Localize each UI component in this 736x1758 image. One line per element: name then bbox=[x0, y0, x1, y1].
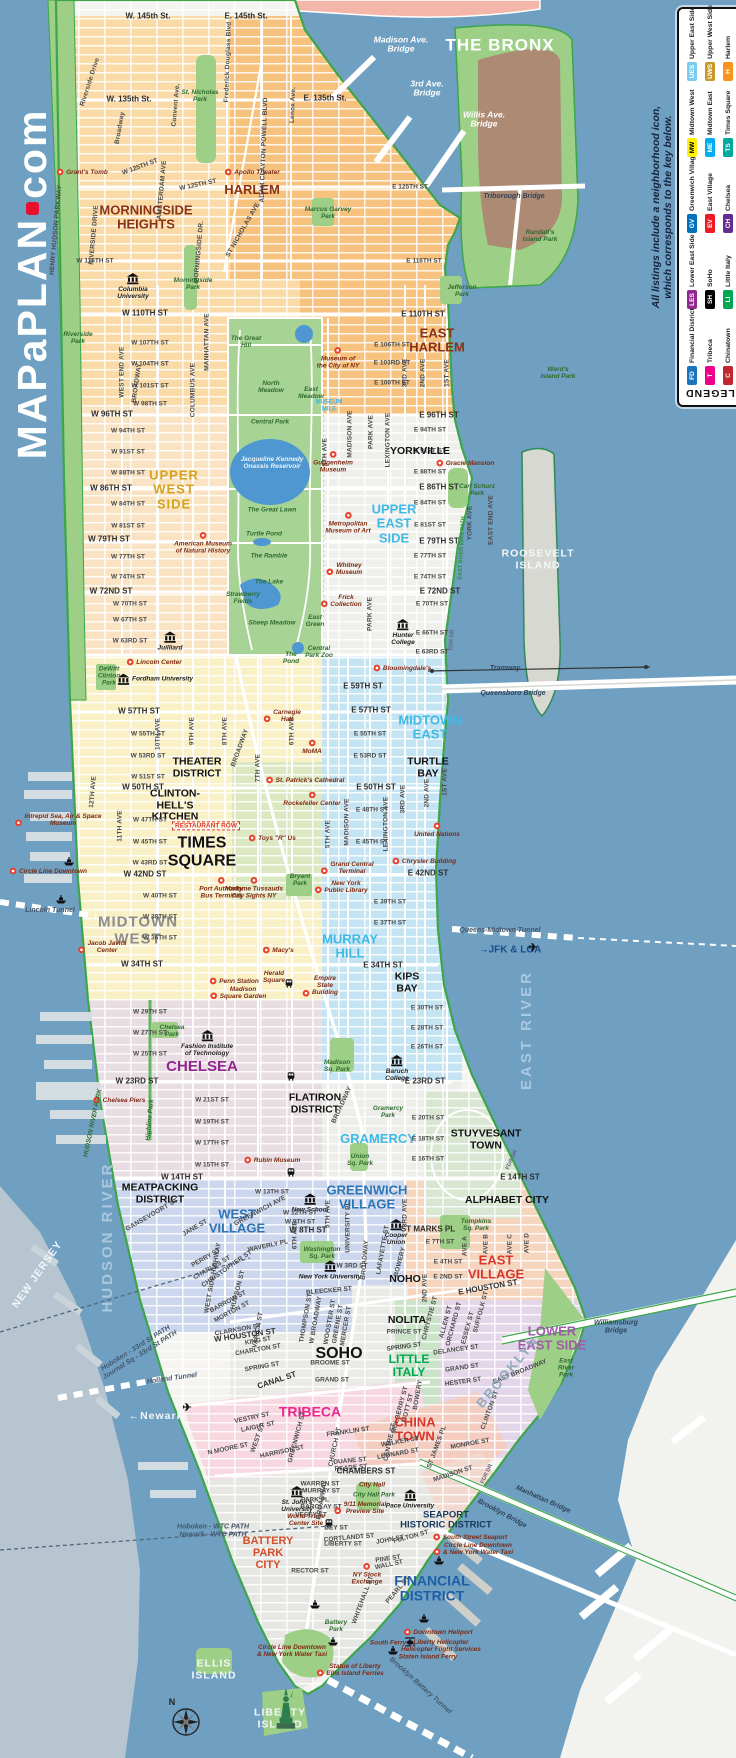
9th-ave-text: 9TH AVE bbox=[188, 717, 195, 745]
roosevelt-island-text: ROOSEVELTISLAND bbox=[502, 548, 575, 571]
convent-ave-text: Convent Ave. bbox=[171, 83, 182, 127]
st-nicholas-ave: ST NICHOLAS AVE bbox=[225, 202, 262, 259]
e-20th-st-text: E 20TH ST bbox=[412, 1114, 444, 1121]
grand-central-terminal: Grand CentralTerminal bbox=[320, 861, 373, 875]
w-135th-st-text: W. 135th St. bbox=[107, 96, 152, 105]
lincoln-center: Lincoln Center bbox=[126, 658, 182, 666]
tompkins-sq-park-text: TompkinsSq. Park bbox=[461, 1218, 491, 1232]
w-14th-st: W 14TH ST bbox=[161, 1174, 203, 1183]
st-nicholas-ave-text: ST NICHOLAS AVE bbox=[225, 202, 262, 259]
hester-st: HESTER ST bbox=[444, 1376, 481, 1388]
subway-icon bbox=[286, 1167, 296, 1177]
lincoln-tunnel: Lincoln Tunnel bbox=[25, 907, 75, 915]
gramercy-park: GramercyPark bbox=[373, 1105, 403, 1119]
w-81st-st: W 81ST ST bbox=[111, 522, 145, 529]
jacqueline-kennedy-onassis-reservoir: Jacqueline KennedyOnassis Reservoir bbox=[241, 456, 304, 470]
fdr-dr: FDR DR bbox=[505, 1149, 519, 1170]
madison-st: MADISON ST bbox=[432, 1464, 473, 1483]
e-18th-st-text: E 18TH ST bbox=[412, 1135, 444, 1142]
legend-label: Midtown East bbox=[707, 91, 714, 135]
poi-icon bbox=[266, 776, 274, 784]
the-great-hill: The GreatHill bbox=[231, 335, 261, 349]
morningside-heights: MORNINGSIDEHEIGHTS bbox=[99, 204, 192, 233]
columbus-ave: COLUMBUS AVE bbox=[189, 363, 196, 417]
union-sq-park: UnionSq. Park bbox=[347, 1153, 373, 1167]
broadway: Broadway bbox=[114, 111, 127, 144]
pace-university-text: Pace University bbox=[386, 1502, 434, 1509]
museum-of-the-city-of-ny-text: Museum ofthe City of NY bbox=[317, 355, 360, 369]
poi-icon bbox=[126, 658, 134, 666]
lafayette-st: LAFAYETTE ST bbox=[375, 1225, 391, 1275]
e-23rd-st: E 23RD ST bbox=[405, 1078, 445, 1087]
john-st-text: JOHN ST bbox=[376, 1534, 405, 1546]
w-77th-st: W 77TH ST bbox=[111, 553, 145, 560]
airplane-icon: ✈ bbox=[528, 942, 537, 954]
st-nicholas-park-text: St. NicholasPark bbox=[181, 89, 218, 103]
the-bronx: THE BRONX bbox=[445, 37, 554, 56]
battery-park-city: BATTERYPARKCITY bbox=[243, 1535, 294, 1571]
tribeca-text: TRIBECA bbox=[279, 1404, 341, 1419]
8th-ave: 8TH AVE bbox=[221, 717, 228, 745]
museum-mile-text: MUSEUMMILE bbox=[316, 399, 343, 412]
7th-ave: 7TH AVE bbox=[254, 754, 261, 782]
brooklyn-battery-tunnel-text: Brooklyn Battery Tunnel bbox=[387, 1656, 452, 1716]
empire-state-building: EmpireStateBuilding bbox=[302, 975, 338, 997]
ellis-island-text: ELLISISLAND bbox=[191, 1658, 236, 1681]
1st-ave-text: 1ST AVE bbox=[441, 768, 448, 796]
circle-line-downtown-new-york-water-taxi: Circle Line Downtown& New York Water Tax… bbox=[257, 1644, 327, 1658]
legend-label: Greenwich Village bbox=[689, 153, 696, 211]
e-42nd-st: E 42ND ST bbox=[408, 870, 448, 879]
poi-icon bbox=[403, 1628, 411, 1636]
w-25th-st: W 25TH ST bbox=[133, 1050, 167, 1057]
w-57th-st: W 57TH ST bbox=[118, 708, 160, 717]
e-20th-st: E 20TH ST bbox=[412, 1114, 444, 1121]
w-116th-st: W 116TH ST bbox=[76, 257, 113, 264]
the-great-lawn: The Great Lawn bbox=[248, 506, 297, 513]
manhattan-tourist-map: W. 145th St.E. 145th St.THE BRONXMadison… bbox=[0, 0, 736, 1758]
the-pond: ThePond bbox=[283, 651, 299, 665]
e-55th-st-text: E 55TH ST bbox=[354, 730, 386, 737]
w-23rd-st-text: W 23RD ST bbox=[116, 1078, 159, 1087]
w-50th-st-text: W 50TH ST bbox=[122, 784, 164, 793]
legend-item-sh: SHSoHo bbox=[701, 233, 719, 309]
east-meadow-text: EastMeadow bbox=[298, 386, 324, 400]
statue-icon bbox=[273, 1688, 299, 1736]
macy-s: Macy's bbox=[262, 946, 293, 954]
w-42nd-st: W 42ND ST bbox=[124, 871, 167, 880]
hunter-college: HunterCollege bbox=[391, 618, 414, 646]
lexington-ave-text: LEXINGTON AVE bbox=[384, 413, 391, 468]
gramercy-park-text: GramercyPark bbox=[373, 1105, 403, 1119]
st-marks-pl: ST MARKS PL bbox=[401, 1226, 455, 1235]
legend-badge-h: H bbox=[723, 62, 733, 81]
e-34th-st-text: E 34TH ST bbox=[363, 962, 403, 971]
w-67th-st: W 67TH ST bbox=[113, 616, 147, 623]
e-110th-st: E 110TH ST bbox=[401, 311, 445, 320]
st-nicholas-park: St. NicholasPark bbox=[181, 89, 218, 103]
9th-ave: 9TH AVE bbox=[188, 717, 195, 745]
w-13th-st: W 13TH ST bbox=[255, 1188, 289, 1195]
american-museum-of-natural-history: American Museumof Natural History bbox=[174, 531, 232, 554]
lenox-ave: Lenox Ave. bbox=[289, 87, 297, 123]
w-9th-st: W 9TH ST bbox=[285, 1218, 315, 1225]
icon-subway bbox=[286, 1071, 298, 1081]
e-94th-st-text: E 94TH ST bbox=[414, 426, 446, 433]
university-pl-text: UNIVERSITY PL bbox=[344, 1201, 351, 1253]
bank-icon bbox=[403, 1488, 416, 1501]
subway-icon bbox=[284, 978, 294, 988]
harlem: HARLEM bbox=[224, 183, 280, 197]
site-name: MAPaPLAN bbox=[9, 218, 56, 460]
e-16th-st-text: E 16TH ST bbox=[412, 1155, 444, 1162]
columbia-university-text: ColumbiaUniversity bbox=[117, 286, 148, 300]
w-45th-st-text: W 45TH ST bbox=[133, 838, 167, 845]
w-104th-st-text: W 104TH ST bbox=[131, 360, 169, 367]
east-river-park: EastRiverPark bbox=[558, 1357, 574, 1378]
boat-icon bbox=[327, 1635, 339, 1647]
2nd-ave: 2ND AVE bbox=[423, 779, 430, 808]
kips-bay: KIPSBAY bbox=[395, 971, 420, 994]
hoboken-33rd-st-path-journal-sq-33rd-st--text: Hoboken - 33rd St PATHJournal Sq - 33rd … bbox=[97, 1323, 178, 1382]
manhattan-bridge-text: Manhattan Bridge bbox=[514, 1484, 571, 1515]
legend-item-ev: EVEast Village bbox=[701, 157, 719, 233]
madison-sq-park-text: MadisonSq. Park bbox=[324, 1059, 350, 1073]
madison-sq-park: MadisonSq. Park bbox=[324, 1059, 350, 1073]
rubin-museum-text: Rubin Museum bbox=[254, 1157, 301, 1164]
w-135th-st: W. 135th St. bbox=[107, 96, 152, 105]
e-37th-st: E 37TH ST bbox=[374, 919, 406, 926]
e-16th-st: E 16TH ST bbox=[412, 1155, 444, 1162]
highline-park-text: Highline Park bbox=[145, 1099, 156, 1141]
times-square: TIMESSQUARE bbox=[168, 834, 236, 869]
e-74th-st: E 74TH ST bbox=[414, 573, 446, 580]
legend-item-ues: UESUpper East Side bbox=[683, 5, 701, 81]
upper-west-side: UPPERWESTSIDE bbox=[149, 469, 199, 512]
e-63rd-st: E 63RD ST bbox=[416, 648, 449, 655]
e-39th-st: E 39TH ST bbox=[374, 898, 406, 905]
poi-icon bbox=[320, 867, 328, 875]
riverside-drive-text: Riverside Drive bbox=[79, 57, 101, 107]
icon-subway bbox=[286, 1167, 298, 1177]
icon-boat bbox=[327, 1635, 341, 1647]
manhattan-ave: MANHATTAN AVE bbox=[203, 313, 210, 371]
riverside-drive: RIVERSIDE DRIVE bbox=[88, 205, 100, 265]
legend-label: Chelsea bbox=[725, 185, 732, 211]
south-street-seaport-text: South Street Seaport bbox=[443, 1534, 508, 1541]
prince-st: PRINCE ST bbox=[387, 1328, 422, 1335]
w-98th-st-text: W 98TH ST bbox=[133, 400, 167, 407]
riverside-drive: Riverside Drive bbox=[79, 57, 101, 107]
the-pond-text: ThePond bbox=[283, 651, 299, 665]
poi-icon bbox=[308, 791, 316, 799]
w-125th-st: W 125TH ST bbox=[179, 178, 217, 193]
poi-icon bbox=[262, 946, 270, 954]
ave-b-text: AVE B bbox=[482, 1234, 489, 1254]
legend-item-ch: CHChelsea bbox=[719, 157, 736, 233]
e-28th-st-text: E 28TH ST bbox=[411, 1024, 443, 1031]
hoboken-wtc-path-newark-wtc-path: Hoboken - WTC PATHNewark - WTC PATH bbox=[177, 1523, 249, 1538]
1st-ave: 1ST AVE bbox=[441, 768, 448, 796]
morningside-dr-text: MORNINGSIDE DR. bbox=[193, 221, 206, 284]
hester-st-text: HESTER ST bbox=[444, 1376, 481, 1388]
rockefeller-center: Rockefeller Center bbox=[283, 791, 340, 807]
upper-east-side: UPPEREASTSIDE bbox=[372, 503, 417, 546]
legend-badge-c: C bbox=[723, 366, 733, 385]
baruch-college-text: BaruchCollege bbox=[385, 1068, 408, 1082]
icon-subway bbox=[284, 978, 296, 988]
w-70th-st-text: W 70TH ST bbox=[113, 600, 147, 607]
w-25th-st-text: W 25TH ST bbox=[133, 1050, 167, 1057]
lexington-ave: LEXINGTON AVE bbox=[384, 413, 391, 468]
w-12th-st: W 12TH ST bbox=[283, 1209, 317, 1216]
battery-park-text: BatteryPark bbox=[325, 1619, 347, 1633]
boat-icon bbox=[309, 1598, 321, 1610]
turtle-pond: Turtle Pond bbox=[246, 530, 282, 537]
the-great-hill-text: The GreatHill bbox=[231, 335, 261, 349]
united-nations-text: United Nations bbox=[414, 831, 460, 838]
legend-item-me: MEMidtown East bbox=[701, 81, 719, 157]
poi-icon bbox=[263, 715, 271, 723]
legend-badge-ts: TS bbox=[723, 138, 733, 157]
e-79th-st-text: E 79TH ST bbox=[419, 538, 459, 547]
united-nations: United Nations bbox=[414, 822, 460, 838]
east-end-ave: EAST END AVE bbox=[487, 495, 494, 545]
poi-icon bbox=[334, 346, 342, 354]
fashion-institute-of-technology-text: Fashion Instituteof Technology bbox=[181, 1043, 233, 1057]
w-70th-st: W 70TH ST bbox=[113, 600, 147, 607]
staten-island-ferry: Staten Island Ferry bbox=[399, 1653, 458, 1660]
e-59th-st-text: E 59TH ST bbox=[343, 683, 383, 692]
apollo-theater-text: Apollo Theater bbox=[234, 169, 280, 176]
poi-icon bbox=[209, 977, 217, 985]
empire-state-building-text: EmpireStateBuilding bbox=[312, 975, 338, 996]
fashion-institute-of-technology: Fashion Instituteof Technology bbox=[181, 1029, 233, 1057]
w-14th-st-text: W 14TH ST bbox=[161, 1174, 203, 1183]
legend-label: Upper West Side bbox=[707, 5, 714, 59]
central-park: Central Park bbox=[251, 418, 289, 425]
new-york-public-library-text: New YorkPublic Library bbox=[324, 880, 367, 894]
site-banner-link[interactable]: MAPaPLAN com bbox=[8, 8, 56, 560]
chelsea-piers-text: Chelsea Piers bbox=[103, 1097, 146, 1104]
east-meadow: EastMeadow bbox=[298, 386, 324, 400]
bank-icon bbox=[201, 1029, 214, 1042]
w-116th-st-text: W 116TH ST bbox=[76, 257, 113, 264]
e-23rd-st-text: E 23RD ST bbox=[405, 1078, 445, 1087]
broadway: BROADWAY bbox=[230, 728, 250, 768]
lexington-ave-text: LEXINGTON AVE bbox=[382, 797, 389, 852]
w-40th-st-text: W 40TH ST bbox=[143, 892, 177, 899]
legend-badge-ch: CH bbox=[723, 214, 733, 233]
lexington-ave: LEXINGTON AVE bbox=[382, 797, 389, 852]
riverside-park: RiversidePark bbox=[63, 331, 92, 345]
e-145th-st: E. 145th St. bbox=[224, 13, 267, 22]
ave-d: AVE D bbox=[523, 1233, 530, 1253]
queens-midtown-tunnel-text: Queens-Midtown Tunnel bbox=[459, 927, 540, 935]
e-74th-st-text: E 74TH ST bbox=[414, 573, 446, 580]
spring-st: SPRING ST bbox=[244, 1360, 280, 1373]
legend-item-c: CChinatown bbox=[719, 309, 736, 385]
triborough-bridge: Triborough Bridge bbox=[483, 193, 544, 201]
legend-label: East Village bbox=[707, 173, 714, 211]
e-30th-st-text: E 30TH ST bbox=[411, 1004, 443, 1011]
legend-item-fd: FDFinancial District bbox=[683, 309, 701, 385]
highline-park: Highline Park bbox=[145, 1099, 156, 1141]
east-river-bike-path-text: EAST RIVER BIKE PATH bbox=[457, 516, 466, 580]
legend-label: Times Square bbox=[725, 91, 732, 135]
canal-st: CANAL ST bbox=[256, 1371, 297, 1392]
poi-icon bbox=[344, 511, 352, 519]
e-7th-st-text: E 7TH ST bbox=[426, 1238, 455, 1245]
icon-compass bbox=[171, 1707, 203, 1737]
the-great-lawn-text: The Great Lawn bbox=[248, 506, 297, 513]
2nd-ave-text: 2ND AVE bbox=[423, 779, 430, 808]
delancey-st: DELANCEY ST bbox=[433, 1343, 479, 1356]
legend-label: Upper East Side bbox=[689, 7, 696, 59]
legend-badge-fd: FD bbox=[687, 366, 697, 385]
boat-icon bbox=[55, 893, 67, 905]
rockefeller-center-text: Rockefeller Center bbox=[283, 800, 340, 807]
legend-badge-gv: GV bbox=[687, 214, 697, 233]
e-96th-st-text: E 96TH ST bbox=[419, 412, 459, 421]
e-66th-st: E 66TH ST bbox=[416, 629, 448, 636]
toys-r-us: Toys "R" Us bbox=[248, 834, 296, 842]
hudson-river-text: HUDSON RIVER bbox=[100, 1161, 117, 1312]
delancey-st-text: DELANCEY ST bbox=[433, 1343, 479, 1356]
w-19th-st: W 19TH ST bbox=[195, 1118, 229, 1125]
1st-ave-text: 1ST AVE bbox=[443, 359, 450, 387]
poi-icon bbox=[9, 867, 17, 875]
w-45th-st: W 45TH ST bbox=[133, 838, 167, 845]
e-84th-st: E 84TH ST bbox=[414, 499, 446, 506]
convent-ave: Convent Ave. bbox=[171, 83, 182, 127]
poi-icon bbox=[77, 946, 85, 954]
w-86th-st: W 86TH ST bbox=[90, 485, 132, 494]
chelsea-park: ChelseaPark bbox=[160, 1024, 185, 1038]
w-125th-st: W 125TH ST bbox=[121, 157, 159, 177]
w-79th-st: W 79TH ST bbox=[88, 536, 130, 545]
e-30th-st: E 30TH ST bbox=[411, 1004, 443, 1011]
ward-s-island-park-text: Ward'sIsland Park bbox=[541, 366, 576, 380]
legend: All listings include a neighborhood icon… bbox=[650, 7, 736, 407]
w-81st-st-text: W 81ST ST bbox=[111, 522, 145, 529]
legend-item-mw: MWMidtown West bbox=[683, 81, 701, 157]
poi-icon bbox=[308, 739, 316, 747]
legend-badge-me: ME bbox=[705, 138, 715, 157]
w-9th-st-text: W 9TH ST bbox=[285, 1218, 315, 1225]
randall-s-island-park-text: Randall'sIsland Park bbox=[523, 229, 558, 243]
battery-park: BatteryPark bbox=[325, 1619, 347, 1633]
poi-icon bbox=[329, 450, 337, 458]
hoboken-33rd-st-path-journal-sq-33rd-st-: Hoboken - 33rd St PATHJournal Sq - 33rd … bbox=[97, 1323, 178, 1382]
boat-icon bbox=[63, 855, 75, 867]
statue-of-liberty-ellis-island-ferries-text: Statue of LibertyEllis Island Ferries bbox=[326, 1663, 383, 1677]
e-88th-st: E 88TH ST bbox=[414, 468, 446, 475]
holland-tunnel: Holland Tunnel bbox=[146, 1372, 197, 1387]
york-ave: YORK AVE bbox=[466, 506, 473, 541]
newark-text: ←Newark bbox=[129, 1411, 184, 1423]
frederick-douglass-blvd-text: Frederick Douglass Blvd bbox=[223, 21, 233, 102]
central-park-zoo-text: CentralPark Zoo bbox=[305, 645, 333, 659]
w-43rd-st: W 43RD ST bbox=[133, 859, 168, 866]
manhattan-bridge: Manhattan Bridge bbox=[514, 1484, 571, 1515]
e-72nd-st-text: E 72ND ST bbox=[420, 588, 460, 597]
1st-ave: 1ST AVE bbox=[443, 359, 450, 387]
poi-icon bbox=[217, 876, 225, 884]
waverly-pl: WAVERLY PL bbox=[247, 1238, 289, 1254]
e-4th-st-text: E 4TH ST bbox=[434, 1258, 463, 1265]
e-34th-st: E 34TH ST bbox=[363, 962, 403, 971]
w-84th-st: W 84TH ST bbox=[111, 500, 145, 507]
w-53rd-st-text: W 53RD ST bbox=[131, 752, 166, 759]
airplane-icon: ✈ bbox=[182, 1402, 191, 1414]
broome-st-text: BROOME ST bbox=[310, 1359, 349, 1366]
spring-st-text: SPRING ST bbox=[244, 1360, 280, 1373]
fdr-dr: FDR DR bbox=[480, 1463, 494, 1484]
marcus-garvey-park: Marcus GarveyPark bbox=[305, 206, 352, 220]
madison-square-garden: MadisonSquare Garden bbox=[210, 986, 267, 1000]
poi-icon bbox=[326, 568, 334, 576]
madison-ave-text: MADISON AVE bbox=[343, 798, 350, 845]
6th-ave: 6TH AVE bbox=[288, 717, 295, 745]
rector-st: RECTOR ST bbox=[291, 1567, 328, 1574]
lafayette-st-text: LAFAYETTE ST bbox=[375, 1225, 391, 1275]
w-86th-st-text: W 86TH ST bbox=[90, 485, 132, 494]
willis-ave-bridge-text: Willis Ave.Bridge bbox=[463, 111, 505, 130]
5th-ave-text: 5TH AVE bbox=[324, 820, 331, 848]
grand-st: GRAND ST bbox=[315, 1376, 349, 1383]
w-94th-st: W 94TH ST bbox=[111, 427, 145, 434]
museum-mile: MUSEUMMILE bbox=[316, 399, 343, 412]
w-98th-st: W 98TH ST bbox=[133, 400, 167, 407]
e-26th-st: E 26TH ST bbox=[411, 1043, 443, 1050]
w-57th-st-text: W 57TH ST bbox=[118, 708, 160, 717]
e-116th-st: E 116TH ST bbox=[406, 257, 441, 264]
strawberry-fields: StrawberryFields bbox=[226, 591, 260, 605]
e-86th-st-text: E 86TH ST bbox=[419, 484, 459, 493]
morningside-heights-text: MORNINGSIDEHEIGHTS bbox=[99, 204, 192, 233]
boat-icon bbox=[387, 1644, 399, 1656]
w-125th-st-text: W 125TH ST bbox=[179, 178, 217, 193]
w-91st-st-text: W 91ST ST bbox=[111, 448, 145, 455]
st-john-s-university-text: St. John'sUniversity bbox=[281, 1499, 312, 1513]
ave-d-text: AVE D bbox=[523, 1233, 530, 1253]
lincoln-tunnel-text: Lincoln Tunnel bbox=[25, 907, 75, 915]
madame-tussauds-city-sights-ny: Madame TussaudsCity Sights NY bbox=[225, 876, 283, 899]
east-river: EAST RIVER bbox=[519, 970, 536, 1090]
broome-st: BROOME ST bbox=[310, 1359, 349, 1366]
e-94th-st: E 94TH ST bbox=[414, 426, 446, 433]
new-jersey: NEW JERSEY bbox=[11, 1239, 66, 1310]
liberty-st: LIBERTY ST bbox=[324, 1540, 362, 1547]
frick-collection: FrickCollection bbox=[320, 594, 361, 608]
chambers-st-text: CHAMBERS ST bbox=[337, 1468, 396, 1477]
legend-item-li: LILittle Italy bbox=[719, 233, 736, 309]
e-66th-st-text: E 66TH ST bbox=[416, 629, 448, 636]
poi-icon bbox=[373, 664, 381, 672]
east-river-text: EAST RIVER bbox=[519, 970, 536, 1090]
e-37th-st-text: E 37TH ST bbox=[374, 919, 406, 926]
w-40th-st: W 40TH ST bbox=[143, 892, 177, 899]
legend-item-gv: GVGreenwich Village bbox=[683, 157, 701, 233]
n-moore-st-text: N MOORE ST bbox=[207, 1441, 249, 1457]
ave-c-text: AVE C bbox=[506, 1234, 513, 1254]
bank-icon bbox=[396, 618, 409, 631]
10th-ave: 10TH AVE bbox=[154, 718, 161, 750]
legend-item-h: HHarlem bbox=[719, 5, 736, 81]
grand-central-terminal-text: Grand CentralTerminal bbox=[330, 861, 373, 875]
e-14th-st: E 14TH ST bbox=[500, 1174, 540, 1183]
